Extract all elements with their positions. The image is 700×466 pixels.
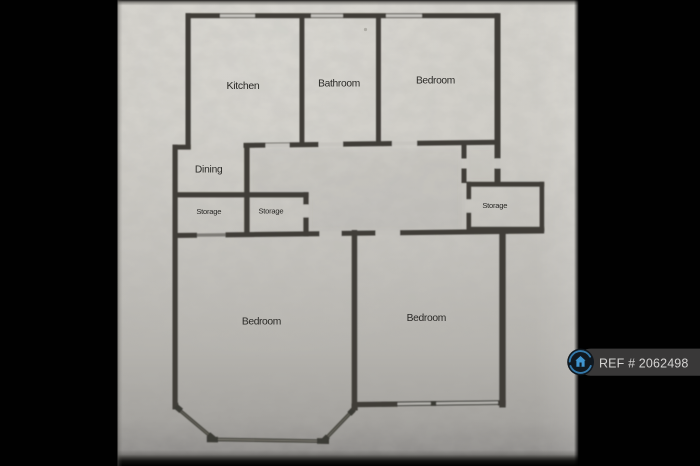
svg-text:Dining: Dining bbox=[195, 164, 223, 175]
svg-text:REF # 2062498: REF # 2062498 bbox=[599, 356, 689, 370]
svg-text:Storage: Storage bbox=[482, 201, 507, 210]
svg-text:Bedroom: Bedroom bbox=[407, 313, 446, 324]
svg-text:Storage: Storage bbox=[196, 207, 221, 216]
svg-text:Bedroom: Bedroom bbox=[416, 76, 455, 87]
svg-text:Bathroom: Bathroom bbox=[318, 79, 360, 90]
svg-text:Kitchen: Kitchen bbox=[227, 80, 260, 92]
svg-text:Bedroom: Bedroom bbox=[242, 316, 281, 327]
svg-text:Storage: Storage bbox=[258, 207, 283, 216]
